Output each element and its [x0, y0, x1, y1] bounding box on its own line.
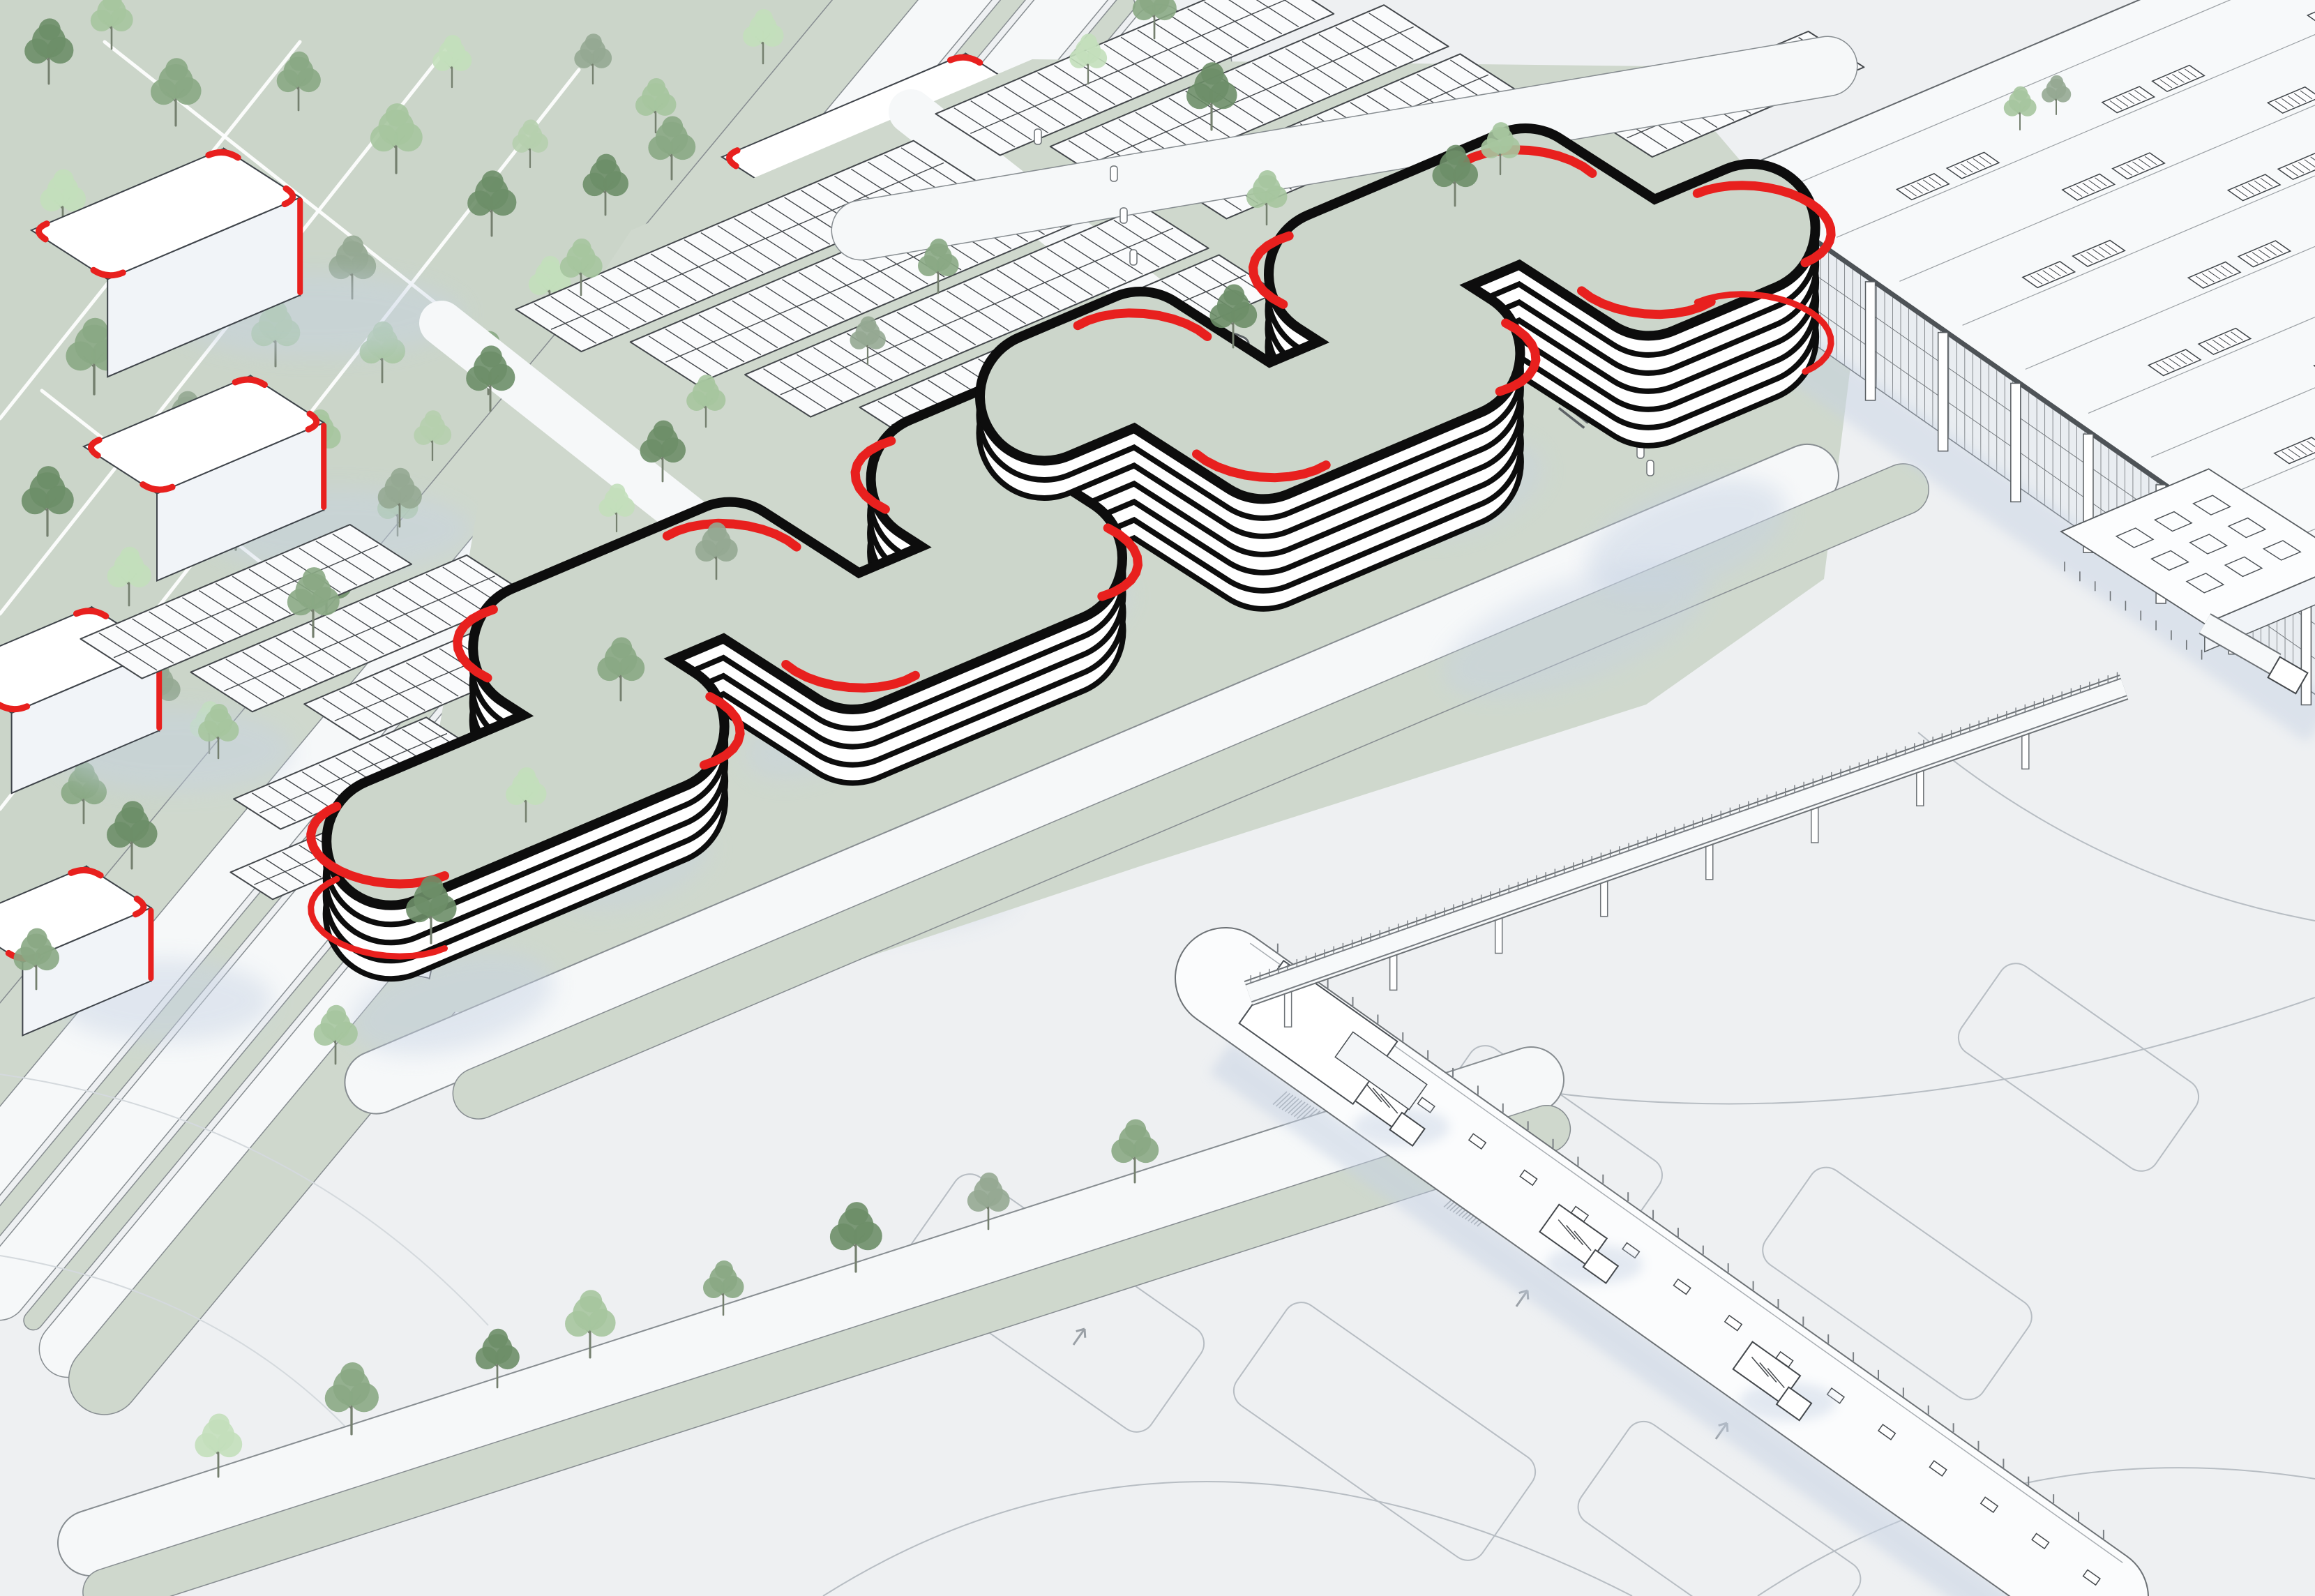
bollard [1120, 208, 1127, 223]
pilotis-column [1938, 333, 1948, 451]
pilotis-column [1866, 282, 1876, 400]
pilotis-column [2011, 383, 2021, 502]
bollard [1130, 250, 1137, 265]
site-illustration-stage [0, 0, 2315, 1596]
axonometric-site-drawing [0, 0, 2315, 1596]
bollard [1647, 460, 1654, 476]
rail-platform [1221, 943, 2123, 1596]
bollard [1110, 166, 1117, 181]
bollard [1034, 129, 1041, 144]
